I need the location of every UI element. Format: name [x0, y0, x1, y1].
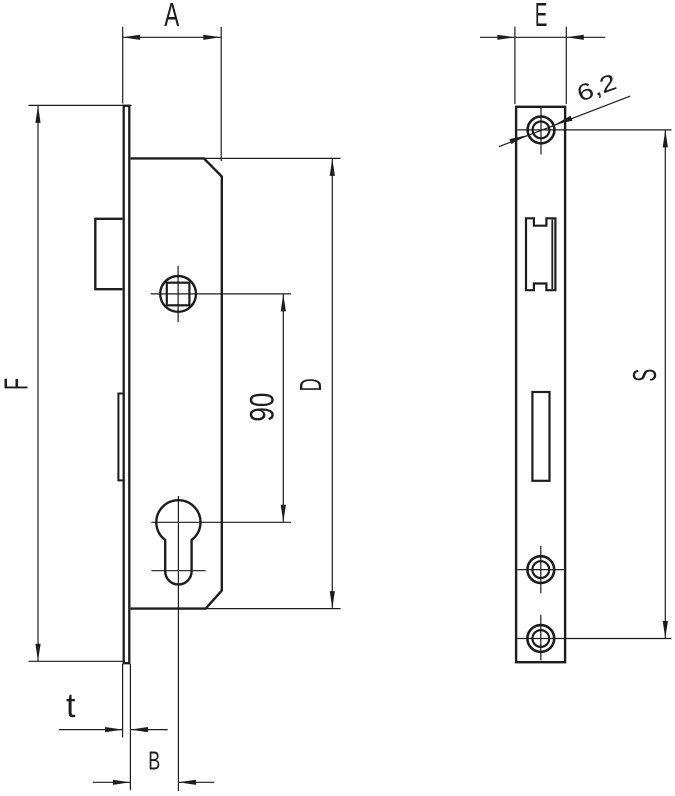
svg-text:S: S — [626, 369, 663, 382]
svg-text:D: D — [293, 378, 328, 391]
svg-text:6,2: 6,2 — [573, 68, 619, 106]
svg-text:A: A — [164, 0, 179, 33]
svg-text:B: B — [148, 746, 160, 776]
svg-text:t: t — [66, 687, 76, 725]
svg-text:E: E — [535, 0, 548, 33]
svg-text:90: 90 — [244, 393, 282, 422]
svg-text:F: F — [0, 378, 34, 390]
